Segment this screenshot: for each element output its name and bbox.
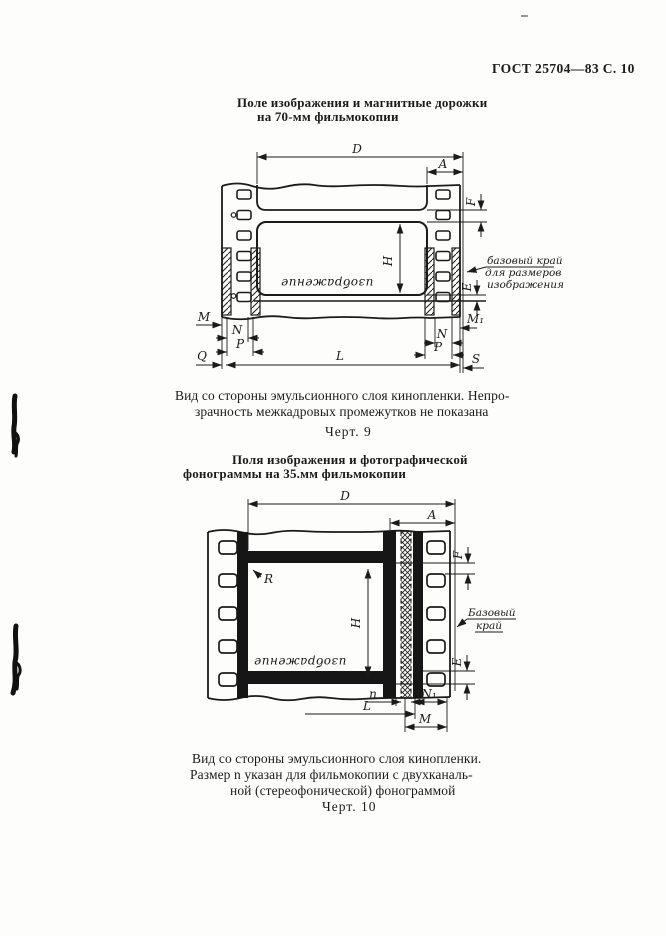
fig10-caption-line3: ной (стереофонической) фонограммой [230, 783, 455, 799]
dim-N-left: N [231, 323, 243, 337]
dim-A: A [438, 157, 448, 171]
page-header-gost: ГОСТ 25704—83 С. 10 [492, 61, 635, 77]
fig10-drawing-35mm-film: изображение D A R H F E [185, 495, 580, 740]
document-page: ГОСТ 25704—83 С. 10 Поле изображения и м… [0, 0, 666, 936]
dim-Q: Q [197, 349, 207, 363]
dim-M1: M₁ [466, 312, 484, 326]
dim-N1: N₁ [420, 687, 436, 701]
dim-D: D [351, 142, 362, 156]
fig9-caption-line1: Вид со стороны эмульсионного слоя кинопл… [175, 388, 509, 404]
perforations-left [219, 541, 237, 686]
fig9-drawing-70mm-film: изображение D A F E H [180, 140, 660, 385]
dim-N-right: N [436, 327, 448, 341]
dim-A: A [427, 508, 437, 522]
dim-H: H [349, 617, 363, 629]
dim-F: F [464, 197, 478, 207]
base-edge-annotation: Базовый край [457, 607, 516, 632]
image-area-label: изображение [254, 655, 347, 669]
dim-P-right: P [433, 340, 443, 354]
fig9-title-line2: на 70-мм фильмокопии [257, 109, 399, 125]
scan-speck [521, 15, 528, 17]
base-edge-annotation: базовый край для размеров изображения [467, 255, 564, 291]
dim-P-left: P [235, 337, 245, 351]
image-area-label: изображение [281, 276, 374, 290]
dim-R: R [263, 572, 273, 586]
dim-M: M [197, 310, 211, 324]
dim-L: L [362, 699, 371, 713]
dim-S: S [472, 352, 480, 366]
dim-F: F [451, 550, 465, 560]
fig10-label: Черт. 10 [322, 799, 376, 815]
fig9-caption-line2: зрачность межкадровых промежутков не пок… [195, 404, 489, 420]
soundtrack-stripe [401, 531, 411, 698]
base-edge-note-line3: изображения [487, 279, 564, 291]
partial-frame [257, 185, 427, 210]
fig10-caption-line1: Вид со стороны эмульсионного слоя кинопл… [192, 751, 481, 767]
base-edge-note-line1: Базовый [467, 607, 516, 619]
dim-H: H [381, 255, 395, 267]
dim-D: D [339, 489, 350, 503]
film-bottom-edge [222, 316, 460, 319]
frame-black-borders [237, 531, 423, 698]
base-edge-note-line1: базовый край [487, 255, 563, 267]
base-edge-note-line2: для размеров [485, 267, 561, 279]
dim-M: M [418, 712, 432, 726]
registration-hole [231, 294, 236, 299]
dim-E: E [460, 282, 474, 292]
fig9-label: Черт. 9 [325, 424, 372, 440]
perforations-right [436, 190, 450, 302]
dim-E: E [450, 657, 464, 667]
dim-L: L [335, 349, 344, 363]
fig10-title-line2: фонограммы на 35.мм фильмокопии [183, 466, 406, 482]
ink-mark-bottom [13, 626, 16, 693]
ink-mark-top [14, 396, 15, 452]
base-edge-note-line2: край [476, 620, 502, 632]
fig10-caption-line2: Размер n указан для фильмокопии с двухка… [190, 767, 473, 783]
ink-marks [0, 380, 40, 710]
registration-hole [231, 213, 236, 218]
perforations-left [231, 190, 251, 302]
